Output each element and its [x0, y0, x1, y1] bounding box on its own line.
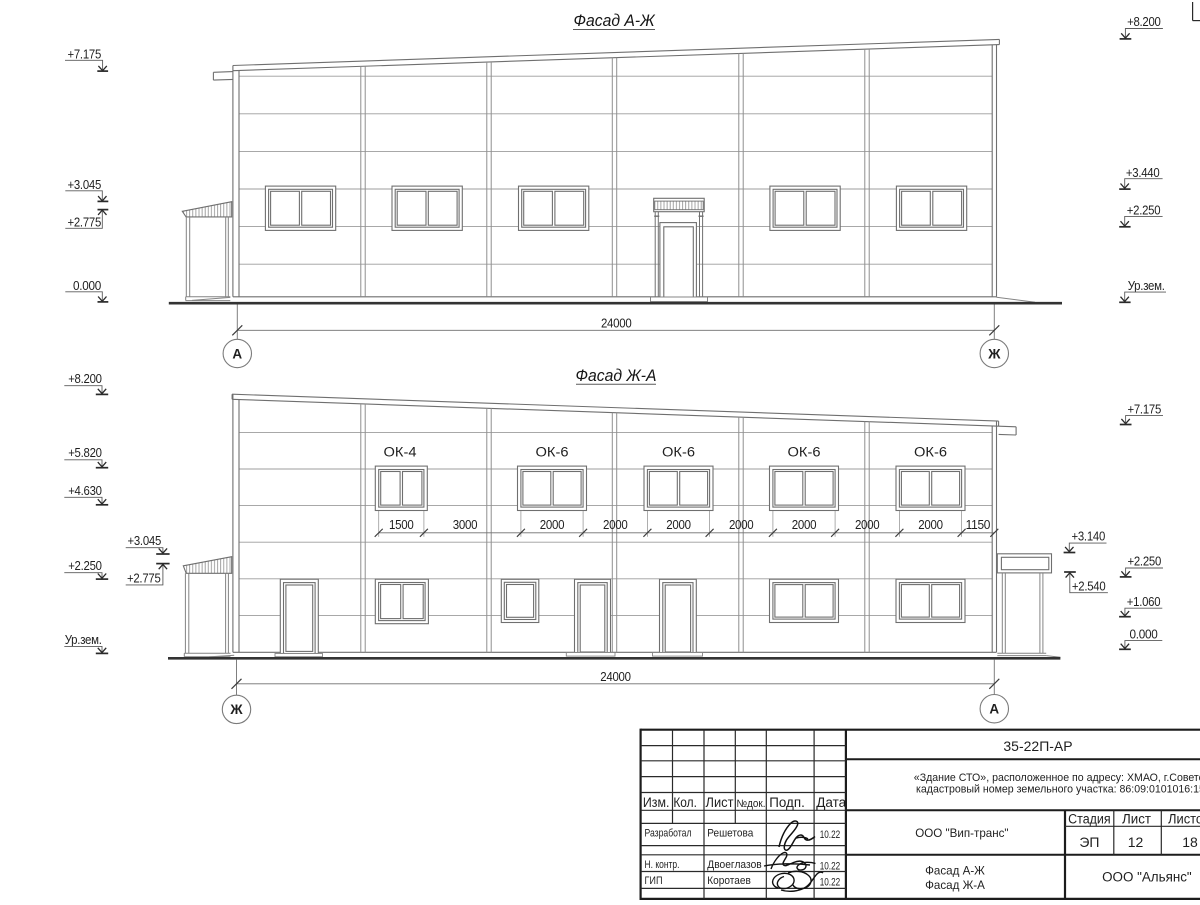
svg-text:+2.250: +2.250 — [68, 558, 102, 573]
svg-text:ОК-6: ОК-6 — [662, 444, 695, 459]
svg-text:+2.775: +2.775 — [68, 214, 102, 229]
svg-text:+2.250: +2.250 — [1128, 554, 1162, 569]
svg-text:2000: 2000 — [792, 518, 817, 532]
svg-text:А: А — [989, 702, 999, 717]
svg-text:Фасад А-Ж: Фасад А-Ж — [574, 11, 656, 30]
svg-text:0.000: 0.000 — [73, 278, 101, 293]
svg-text:2000: 2000 — [918, 518, 943, 532]
svg-text:+3.440: +3.440 — [1126, 165, 1160, 180]
svg-text:24000: 24000 — [601, 315, 632, 330]
svg-text:+4.630: +4.630 — [68, 483, 102, 498]
svg-text:Двоеглазов: Двоеглазов — [707, 859, 762, 871]
svg-text:+3.045: +3.045 — [68, 177, 102, 192]
svg-text:12: 12 — [1128, 834, 1144, 850]
svg-text:+5.820: +5.820 — [68, 445, 102, 460]
svg-text:ООО "Вип-транс": ООО "Вип-транс" — [915, 827, 1008, 840]
svg-text:3000: 3000 — [453, 518, 478, 532]
svg-text:Кол.: Кол. — [673, 795, 697, 811]
svg-text:ОК-6: ОК-6 — [536, 444, 569, 459]
svg-text:2000: 2000 — [603, 518, 628, 532]
svg-text:Изм.: Изм. — [643, 795, 670, 811]
svg-text:+8.200: +8.200 — [68, 371, 102, 386]
svg-text:ОК-4: ОК-4 — [384, 444, 418, 459]
svg-text:Ж: Ж — [987, 346, 1001, 361]
svg-text:Ур.зем.: Ур.зем. — [1128, 278, 1165, 293]
svg-text:Подп.: Подп. — [769, 795, 805, 811]
svg-text:Дата: Дата — [816, 795, 846, 811]
svg-text:ООО "Альянс": ООО "Альянс" — [1102, 869, 1192, 884]
svg-text:Фасад Ж-А: Фасад Ж-А — [576, 366, 657, 385]
svg-text:+2.250: +2.250 — [1127, 203, 1161, 218]
svg-text:+7.175: +7.175 — [68, 46, 102, 61]
svg-text:+1.060: +1.060 — [1127, 594, 1161, 609]
svg-text:кадастровый номер земельного у: кадастровый номер земельного участка: 86… — [916, 784, 1200, 796]
svg-text:Фасад А-Ж: Фасад А-Ж — [925, 864, 985, 877]
svg-text:Коротаев: Коротаев — [707, 875, 751, 887]
svg-text:10.22: 10.22 — [820, 861, 841, 873]
svg-text:24000: 24000 — [600, 669, 631, 684]
svg-text:+3.045: +3.045 — [128, 533, 162, 548]
svg-text:+8.200: +8.200 — [1127, 14, 1161, 29]
svg-text:№док.: №док. — [737, 798, 766, 810]
svg-text:2000: 2000 — [540, 518, 565, 532]
svg-text:0.000: 0.000 — [1130, 626, 1158, 641]
svg-text:10.22: 10.22 — [820, 876, 841, 888]
svg-text:Фасад Ж-А: Фасад Ж-А — [925, 879, 985, 892]
svg-text:+2.775: +2.775 — [127, 571, 161, 586]
svg-text:Решетова: Решетова — [707, 828, 753, 840]
svg-text:ГИП: ГИП — [645, 875, 663, 887]
svg-text:Лист: Лист — [706, 795, 734, 811]
svg-text:+3.140: +3.140 — [1072, 529, 1106, 544]
svg-text:ЭП: ЭП — [1079, 834, 1099, 850]
svg-text:«Здание СТО», расположенное по: «Здание СТО», расположенное по адресу: Х… — [914, 772, 1200, 784]
svg-text:+2.540: +2.540 — [1072, 578, 1106, 593]
svg-text:Разработал: Разработал — [645, 828, 692, 840]
svg-text:1150: 1150 — [966, 518, 991, 532]
svg-text:Ж: Ж — [229, 702, 243, 717]
svg-text:2000: 2000 — [729, 518, 754, 532]
svg-text:А: А — [232, 346, 242, 361]
svg-text:2000: 2000 — [666, 518, 691, 532]
svg-text:Лист: Лист — [1122, 811, 1151, 826]
svg-text:ОК-6: ОК-6 — [788, 444, 821, 459]
svg-text:Листов: Листов — [1168, 811, 1200, 826]
svg-text:Н. контр.: Н. контр. — [645, 859, 680, 871]
svg-text:18: 18 — [1182, 834, 1198, 850]
svg-text:Ур.зем.: Ур.зем. — [65, 632, 102, 647]
svg-text:+7.175: +7.175 — [1128, 401, 1162, 416]
svg-text:2000: 2000 — [855, 518, 880, 532]
svg-text:Стадия: Стадия — [1068, 811, 1111, 826]
svg-text:35-22П-АР: 35-22П-АР — [1003, 738, 1072, 754]
svg-text:ОК-6: ОК-6 — [914, 444, 947, 459]
svg-text:1500: 1500 — [389, 518, 414, 532]
svg-text:10.22: 10.22 — [820, 829, 841, 841]
